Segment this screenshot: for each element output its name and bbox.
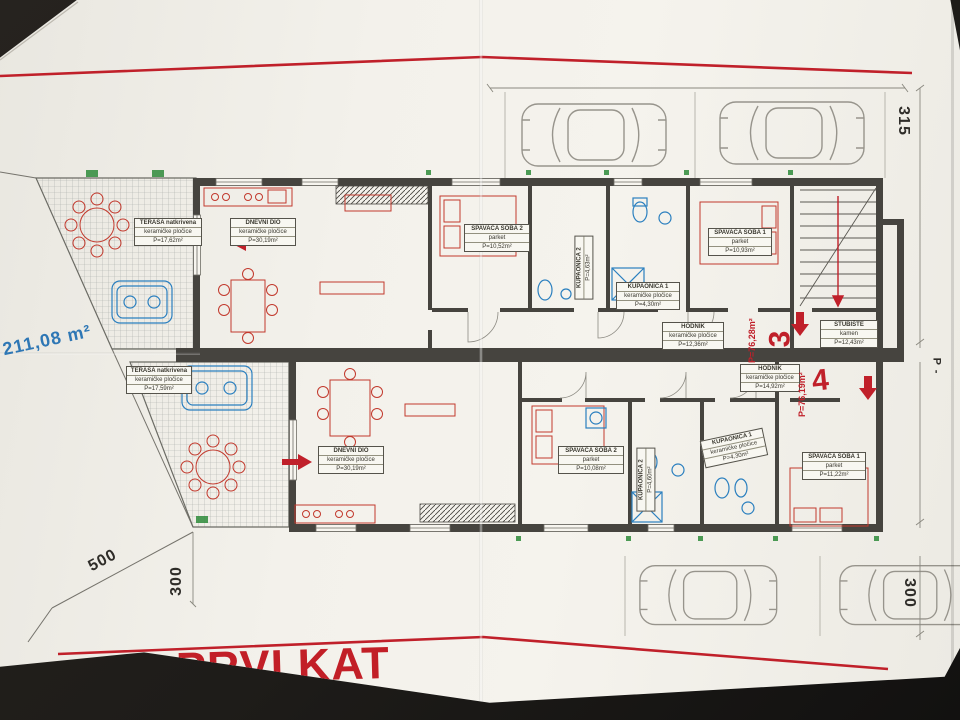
- room-label-soba2-u4: SPAVAĆA SOBA 2 parket P=10,08m²: [558, 446, 624, 474]
- room-label-kupaonica2-u4: KUPAONICA 2 P=4,60m²: [636, 448, 655, 512]
- car-icon: [640, 566, 777, 625]
- room-label-soba1-u4: SPAVAĆA SOBA 1 parket P=11,22m²: [802, 452, 866, 480]
- paper-sheet: TERASA natkrivena keramičke pločice P=17…: [0, 0, 960, 720]
- terrace-upper: [36, 178, 196, 349]
- room-label-soba2-u3: SPAVAĆA SOBA 2 parket P=10,52m²: [464, 224, 530, 252]
- dimension-300-right: 300: [900, 578, 918, 608]
- car-icon: [720, 102, 864, 164]
- sheet-title: PRVI KAT: [175, 637, 390, 695]
- paper-fold-crease: [479, 0, 483, 712]
- unit-number-4: 4: [810, 363, 830, 399]
- unit-area-4: P=76,19m²: [797, 357, 807, 417]
- room-label-soba1-u3: SPAVAĆA SOBA 1 parket P=10,93m²: [708, 228, 772, 256]
- room-label-hodnik-u3: HODNIK keramičke pločice P=12,36m²: [662, 322, 724, 350]
- unit-number-3: 3: [763, 331, 797, 348]
- stairs-direction-arrow: [833, 196, 843, 306]
- room-label-terasa-u4: TERASA natkrivena keramičke pločice P=17…: [126, 366, 192, 394]
- room-label-stubiste: STUBIŠTE kamen P=12,43m²: [820, 320, 878, 348]
- room-label-dnevni-u3: DNEVNI DIO keramičke pločice P=30,19m²: [230, 218, 296, 246]
- unit-area-3: P=76,28m²: [747, 303, 757, 363]
- paper-corner-edge: [0, 2, 78, 60]
- dimension-300-left: 300: [168, 566, 186, 596]
- paper-edge-shadow: [951, 0, 954, 700]
- room-label-dnevni-u4: DNEVNI DIO keramičke pločice P=30,19m²: [318, 446, 384, 474]
- parking-lines: [505, 92, 885, 636]
- room-label-terasa-u3: TERASA natkrivena keramičke pločice P=17…: [134, 218, 202, 246]
- photo-of-floor-plan: TERASA natkrivena keramičke pločice P=17…: [0, 0, 960, 720]
- dimension-315: 315: [894, 106, 912, 136]
- room-label-kupaonica2-u3: KUPAONICA 2 P=4,63m²: [574, 236, 593, 300]
- wardrobe: [420, 504, 515, 522]
- room-label-kupaonica1-u3: KUPAONICA 1 keramičke pločice P=4,30m²: [616, 282, 680, 310]
- red-border-top: [0, 57, 912, 76]
- entrance-arrow-unit4: [859, 376, 877, 400]
- dimension-p-note: P -: [930, 358, 942, 375]
- car-icon: [522, 104, 666, 166]
- room-label-hodnik-u4: HODNIK keramičke pločice P=14,92m²: [740, 364, 800, 392]
